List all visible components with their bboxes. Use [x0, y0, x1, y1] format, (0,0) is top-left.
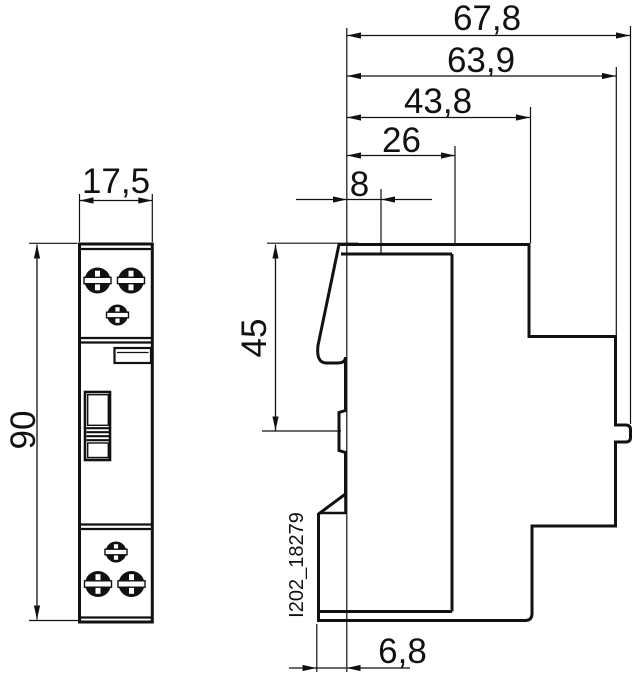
- dimension-label-bottom-offset: 6,8: [378, 632, 427, 671]
- side-view: [318, 245, 631, 621]
- dimension-label-front-depth: 26: [382, 121, 421, 160]
- dimension-label-body-depth: 63,9: [447, 41, 515, 80]
- front-view: [80, 244, 153, 622]
- dimension-front-offset: 8: [296, 165, 432, 253]
- dimension-height: 90: [4, 243, 79, 620]
- dimension-label-front-offset: 8: [350, 165, 369, 204]
- dimension-label-total-depth: 67,8: [453, 0, 521, 38]
- dimension-label-height: 90: [4, 411, 43, 450]
- label-window: [115, 348, 152, 363]
- dimension-step-depth: 43,8: [347, 82, 531, 243]
- dimension-label-front-height: 45: [235, 319, 274, 358]
- switch-handle: [85, 392, 110, 460]
- dimension-bottom-offset: 6,8: [289, 624, 427, 672]
- side-view-outline: [318, 245, 631, 621]
- dimension-label-step-depth: 43,8: [404, 82, 472, 121]
- dimension-label-width: 17,5: [82, 162, 150, 201]
- technical-drawing: 67,8 63,9 43,8 26 8 45: [0, 0, 636, 676]
- dimension-width: 17,5: [80, 162, 153, 242]
- drawing-code: I202_18279: [286, 512, 308, 618]
